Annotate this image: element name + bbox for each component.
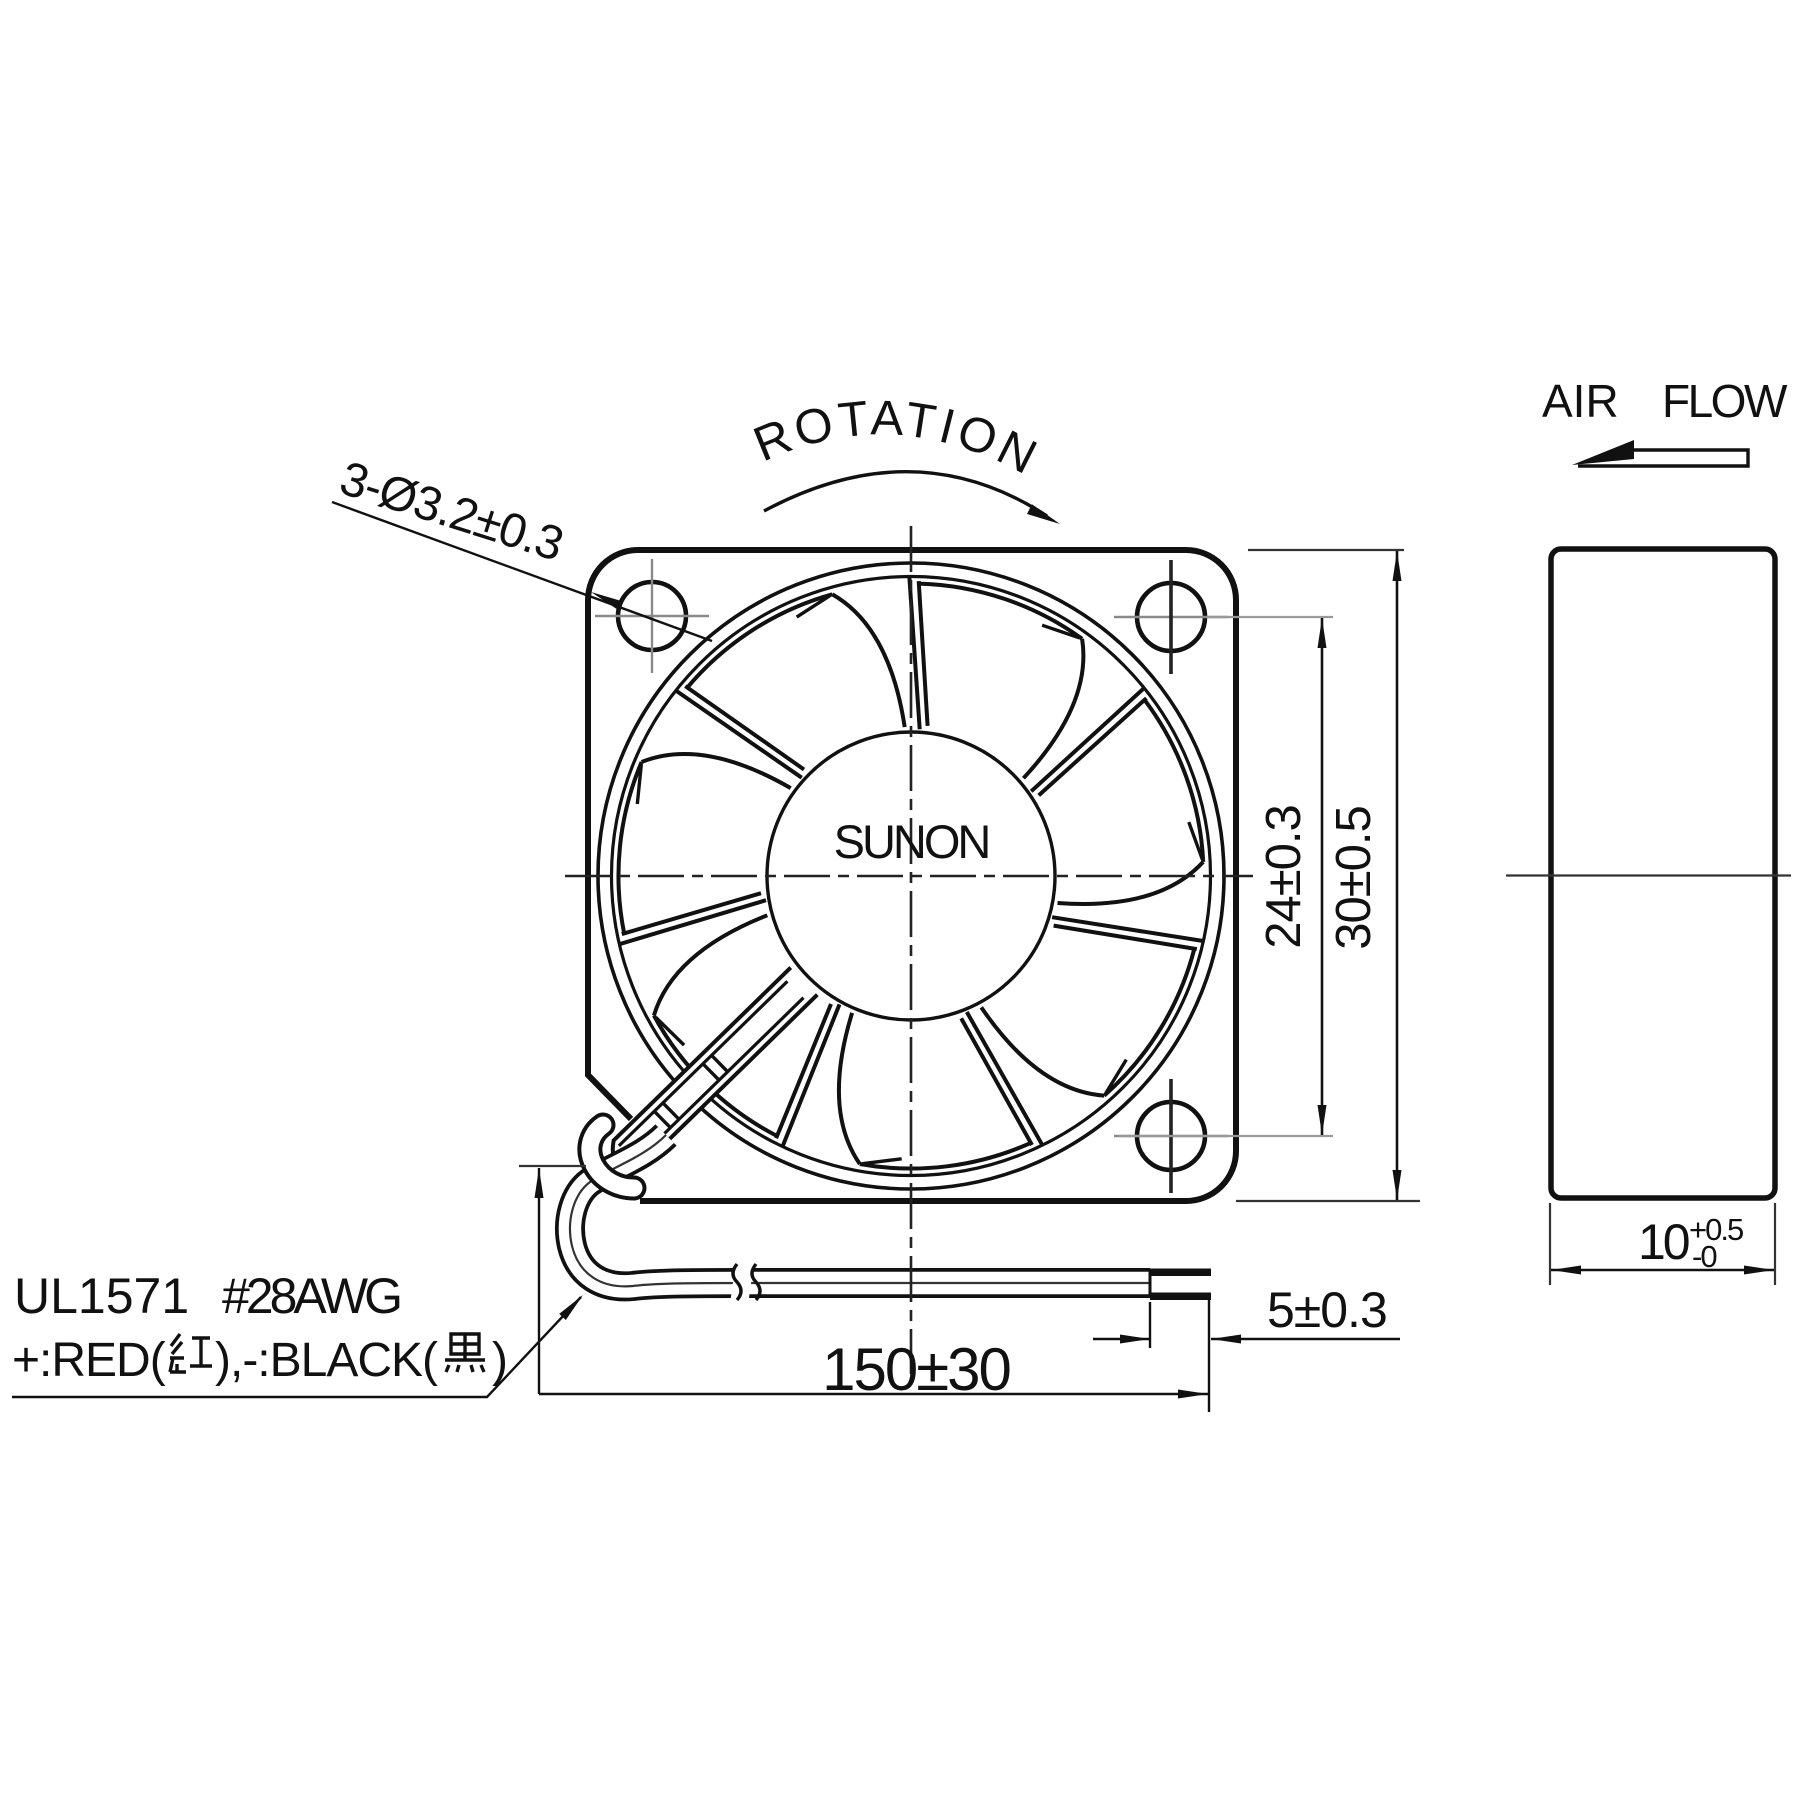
svg-text:30±0.5: 30±0.5 (1327, 806, 1381, 950)
svg-text:+:RED(: +:RED( (12, 1334, 166, 1387)
svg-text:5±0.3: 5±0.3 (1267, 1282, 1387, 1338)
svg-text:150±30: 150±30 (822, 1336, 1010, 1403)
svg-text:): ) (492, 1334, 508, 1387)
svg-text:UL1571: UL1571 (14, 1268, 189, 1324)
svg-text:10: 10 (1638, 1214, 1689, 1270)
svg-text:-0: -0 (1692, 1239, 1717, 1274)
svg-text:24±0.3: 24±0.3 (1257, 805, 1311, 949)
svg-text:FLOW: FLOW (1662, 375, 1788, 427)
svg-text:SUNON: SUNON (834, 815, 989, 868)
svg-text:AIR: AIR (1542, 375, 1619, 427)
svg-text:#28AWG: #28AWG (222, 1268, 400, 1324)
svg-text:),-:BLACK(: ),-:BLACK( (215, 1334, 438, 1387)
